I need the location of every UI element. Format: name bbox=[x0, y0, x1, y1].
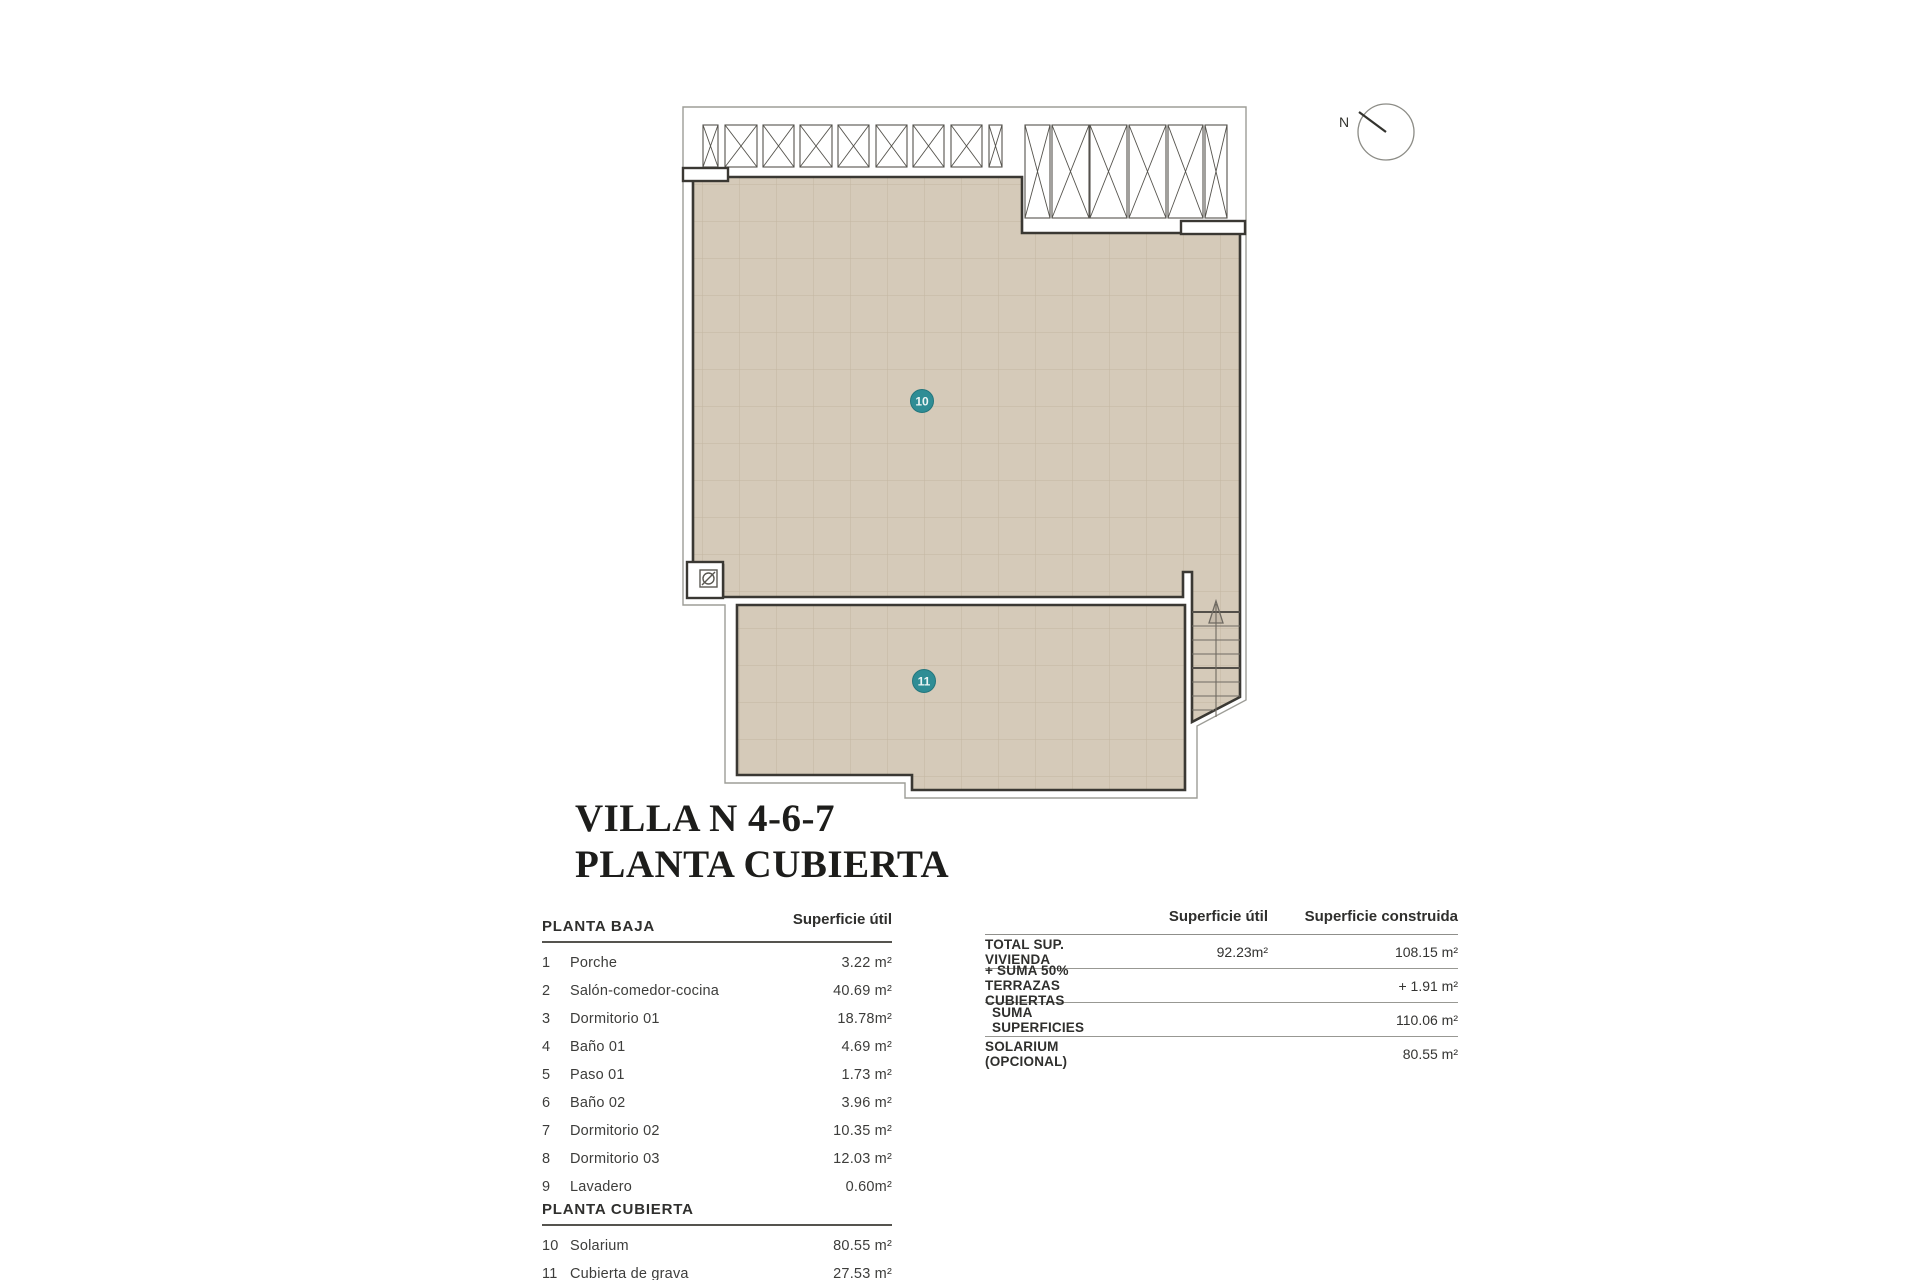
section-unit-header: Superficie útil bbox=[793, 911, 892, 928]
room-number: 5 bbox=[542, 1067, 570, 1083]
room-number: 8 bbox=[542, 1151, 570, 1167]
surface-summary-table: Superficie útil Superficie construida TO… bbox=[985, 908, 1458, 1070]
room-row: 7Dormitorio 0210.35 m² bbox=[542, 1123, 892, 1139]
north-compass-icon: N bbox=[1339, 104, 1414, 160]
room-name: Lavadero bbox=[570, 1179, 846, 1195]
room-area: 3.22 m² bbox=[841, 955, 892, 971]
svg-text:11: 11 bbox=[918, 675, 931, 689]
summary-label: TOTAL SUP. VIVIENDA bbox=[985, 937, 1118, 967]
summary-construida-value: + 1.91 m² bbox=[1268, 978, 1458, 994]
summary-row: SOLARIUM (OPCIONAL)80.55 m² bbox=[985, 1037, 1458, 1070]
room-row: 5Paso 011.73 m² bbox=[542, 1067, 892, 1083]
summary-label: SOLARIUM (OPCIONAL) bbox=[985, 1039, 1118, 1069]
section-header: PLANTA BAJASuperficie útil bbox=[542, 918, 892, 943]
room-number: 4 bbox=[542, 1039, 570, 1055]
summary-row: SUMA SUPERFICIES110.06 m² bbox=[985, 1003, 1458, 1037]
gravel-roof-area bbox=[737, 605, 1185, 790]
room-number: 10 bbox=[542, 1238, 570, 1254]
room-name: Porche bbox=[570, 955, 841, 971]
summary-util-value: 92.23m² bbox=[1118, 944, 1268, 960]
room-name: Dormitorio 02 bbox=[570, 1123, 833, 1139]
room-area: 27.53 m² bbox=[833, 1266, 892, 1280]
area-marker-10: 10 bbox=[911, 390, 934, 413]
room-area: 4.69 m² bbox=[841, 1039, 892, 1055]
page-title: VILLA N 4-6-7 PLANTA CUBIERTA bbox=[575, 796, 949, 888]
summary-construida-value: 110.06 m² bbox=[1268, 1012, 1458, 1028]
room-number: 3 bbox=[542, 1011, 570, 1027]
room-row: 10Solarium80.55 m² bbox=[542, 1238, 892, 1254]
room-number: 6 bbox=[542, 1095, 570, 1111]
room-number: 9 bbox=[542, 1179, 570, 1195]
room-area: 80.55 m² bbox=[833, 1238, 892, 1254]
area-marker-11: 11 bbox=[913, 670, 936, 693]
drain-icon bbox=[700, 570, 717, 587]
floor-plan-drawing: 10 11 N bbox=[0, 0, 1920, 1280]
summary-label: SUMA SUPERFICIES bbox=[985, 1005, 1118, 1035]
col-superficie-construida: Superficie construida bbox=[1268, 908, 1458, 925]
room-area: 3.96 m² bbox=[841, 1095, 892, 1111]
room-number: 11 bbox=[542, 1266, 570, 1280]
col-superficie-util: Superficie útil bbox=[1118, 908, 1268, 925]
section-title: PLANTA CUBIERTA bbox=[542, 1201, 694, 1218]
room-row: 11Cubierta de grava27.53 m² bbox=[542, 1266, 892, 1280]
room-area: 1.73 m² bbox=[841, 1067, 892, 1083]
summary-construida-value: 108.15 m² bbox=[1268, 944, 1458, 960]
room-row: 8Dormitorio 0312.03 m² bbox=[542, 1151, 892, 1167]
summary-row: + SUMA 50% TERRAZAS CUBIERTAS+ 1.91 m² bbox=[985, 969, 1458, 1003]
title-line-1: VILLA N 4-6-7 bbox=[575, 796, 949, 842]
section-header: PLANTA CUBIERTA bbox=[542, 1201, 892, 1226]
room-name: Cubierta de grava bbox=[570, 1266, 833, 1280]
room-area: 40.69 m² bbox=[833, 983, 892, 999]
room-row: 4Baño 014.69 m² bbox=[542, 1039, 892, 1055]
summary-table-header: Superficie útil Superficie construida bbox=[985, 908, 1458, 935]
room-name: Baño 01 bbox=[570, 1039, 841, 1055]
room-area: 0.60m² bbox=[846, 1179, 892, 1195]
room-name: Solarium bbox=[570, 1238, 833, 1254]
title-line-2: PLANTA CUBIERTA bbox=[575, 842, 949, 888]
room-name: Paso 01 bbox=[570, 1067, 841, 1083]
summary-label: + SUMA 50% TERRAZAS CUBIERTAS bbox=[985, 963, 1118, 1008]
room-area: 18.78m² bbox=[837, 1011, 892, 1027]
svg-text:N: N bbox=[1339, 114, 1349, 130]
room-area: 12.03 m² bbox=[833, 1151, 892, 1167]
room-row: 2Salón-comedor-cocina40.69 m² bbox=[542, 983, 892, 999]
svg-text:10: 10 bbox=[915, 395, 929, 409]
room-row: 6Baño 023.96 m² bbox=[542, 1095, 892, 1111]
room-row: 1Porche3.22 m² bbox=[542, 955, 892, 971]
room-area: 10.35 m² bbox=[833, 1123, 892, 1139]
room-name: Dormitorio 01 bbox=[570, 1011, 837, 1027]
room-name: Baño 02 bbox=[570, 1095, 841, 1111]
room-name: Salón-comedor-cocina bbox=[570, 983, 833, 999]
summary-construida-value: 80.55 m² bbox=[1268, 1046, 1458, 1062]
room-row: 9Lavadero0.60m² bbox=[542, 1179, 892, 1195]
room-number: 1 bbox=[542, 955, 570, 971]
room-areas-table: PLANTA BAJASuperficie útil1Porche3.22 m²… bbox=[542, 912, 892, 1280]
room-name: Dormitorio 03 bbox=[570, 1151, 833, 1167]
floor-plan-sheet: 10 11 N VILLA N 4-6-7 PLANTA CUBIERTA PL… bbox=[0, 0, 1920, 1280]
room-number: 2 bbox=[542, 983, 570, 999]
room-number: 7 bbox=[542, 1123, 570, 1139]
section-title: PLANTA BAJA bbox=[542, 918, 655, 935]
room-row: 3Dormitorio 0118.78m² bbox=[542, 1011, 892, 1027]
